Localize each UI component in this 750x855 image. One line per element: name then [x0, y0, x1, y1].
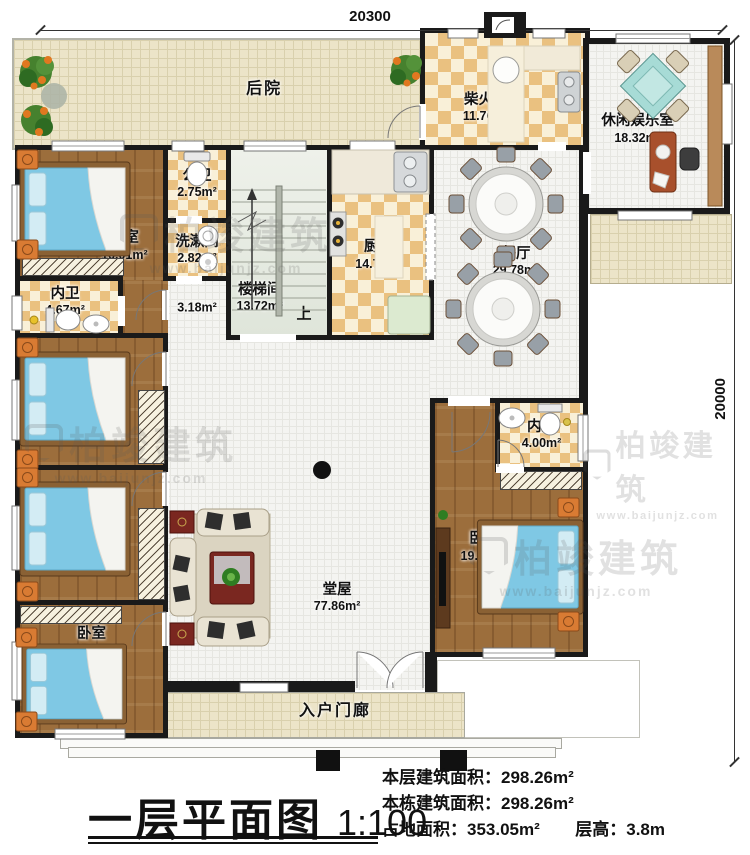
room-label: 内卫 4.00m² — [522, 419, 562, 451]
room-corridor: 3.18m² — [163, 278, 231, 338]
room-hall: 堂屋 77.86m² — [163, 335, 435, 690]
room-label: 堂屋 77.86m² — [314, 581, 361, 613]
room-stairwell: 楼梯间 13.72m² 上 — [226, 145, 332, 340]
room-label: 后院 — [246, 79, 282, 98]
land-area-line: 占地面积：353.05m² 层高：3.8m — [382, 817, 665, 843]
bedroom1-entry — [123, 278, 168, 338]
wall-segment — [425, 652, 437, 692]
room-label: 厨房 14.79m² — [355, 239, 402, 271]
info-block: 本层建筑面积：298.26m² 本栋建筑面积：298.26m² 占地面积：353… — [382, 765, 665, 843]
floor-area-line: 本层建筑面积：298.26m² — [382, 765, 665, 791]
wardrobe — [500, 471, 582, 490]
room-label: 3.18m² — [177, 301, 217, 316]
wardrobe — [138, 390, 165, 464]
porch-step — [68, 747, 556, 758]
room-label: 餐厅 29.78m² — [493, 246, 540, 278]
room-label: 内卫 4.67m² — [45, 286, 85, 318]
room-kitchen: 厨房 14.79m² — [327, 145, 434, 340]
room-label: 卧室 13.31m² — [75, 359, 122, 391]
floor-plan: 20300 20000 堂屋 77.86m² 餐厅 29.78m² 3.18m²… — [0, 0, 750, 855]
title-underline — [88, 836, 378, 839]
room-label: 柴火房 11.76m² — [463, 92, 509, 124]
room-label: 卧室 19.57m² — [461, 531, 508, 563]
room-label: 楼梯间 13.72m² — [237, 282, 284, 314]
watermark: 柏竣建筑 www.baijunjz.com — [584, 421, 732, 522]
room-label: 卧室 14.10m² — [58, 495, 105, 527]
wardrobe — [22, 258, 124, 276]
porch-column — [316, 750, 340, 771]
room-bath1: 内卫 4.67m² — [15, 276, 123, 338]
room-bath2: 内卫 4.00m² — [495, 398, 588, 472]
wardrobe — [20, 606, 122, 624]
room-label: 洗漱间 2.82m² — [175, 233, 219, 265]
dimension-label-top: 20300 — [335, 8, 405, 25]
room-dining: 餐厅 29.78m² — [429, 145, 588, 410]
dimension-line-right — [734, 40, 735, 762]
room-porch: 入户门廊 — [163, 692, 465, 738]
dimension-label-right: 20000 — [712, 378, 729, 420]
room-label: 卧室 14.89m² — [68, 626, 115, 658]
wardrobe — [138, 508, 165, 600]
room-label: 休闲娱乐室 18.32m² — [601, 113, 674, 145]
title-underline — [88, 842, 378, 844]
side-steps-platform — [437, 660, 640, 738]
side-terrace — [590, 214, 732, 284]
wall-segment — [163, 681, 355, 692]
room-label: 公卫 2.75m² — [177, 168, 217, 200]
room-firewood: 柴火房 11.76m² — [420, 28, 590, 150]
dimension-line-top — [40, 30, 723, 31]
building-area-line: 本栋建筑面积：298.26m² — [382, 791, 665, 817]
room-label: 入户门廊 — [299, 702, 371, 721]
room-public-bath: 公卫 2.75m² — [163, 145, 231, 223]
room-washroom: 洗漱间 2.82m² — [163, 218, 231, 281]
room-backyard: 后院 — [12, 38, 440, 150]
room-leisure: 休闲娱乐室 18.32m² — [583, 38, 730, 214]
stair-direction-label: 上 — [296, 302, 311, 323]
